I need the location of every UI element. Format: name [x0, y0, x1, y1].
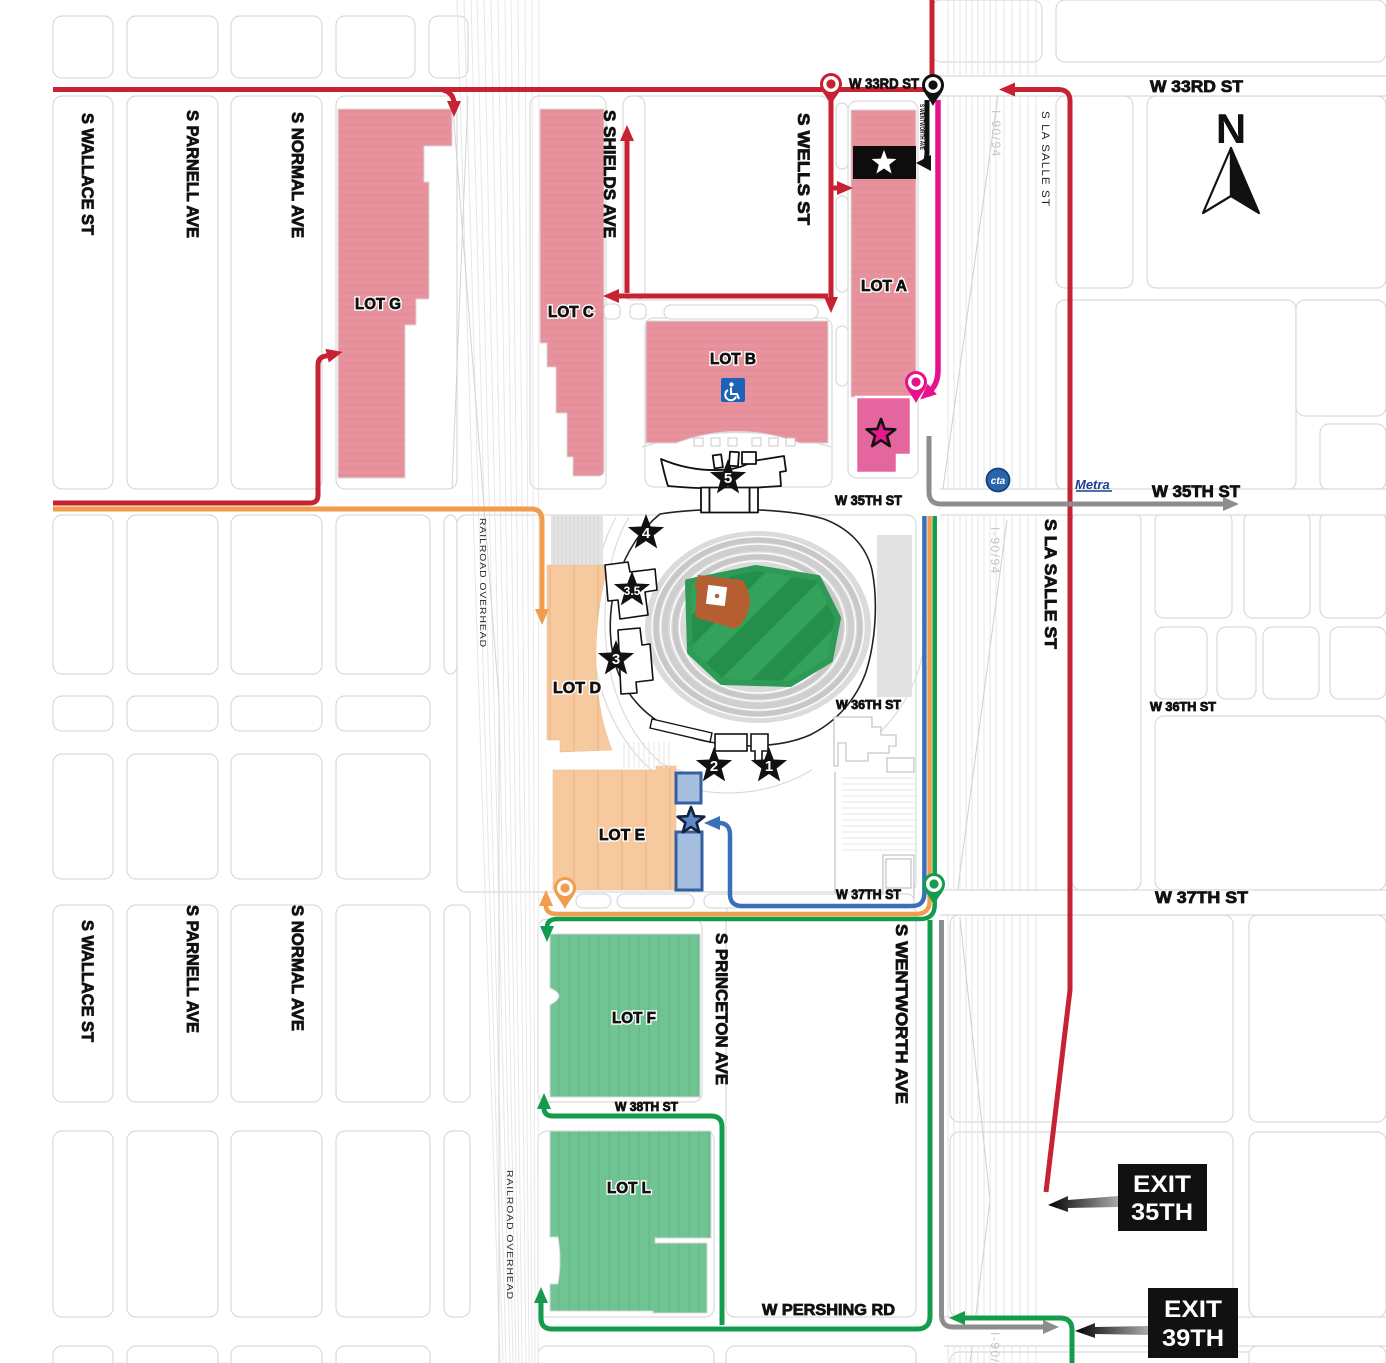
svg-text:S PARNELL AVE: S PARNELL AVE — [183, 110, 202, 238]
svg-text:W 33RD ST: W 33RD ST — [849, 77, 919, 93]
svg-text:RAILROAD OVERHEAD: RAILROAD OVERHEAD — [505, 1170, 515, 1300]
svg-text:5: 5 — [724, 470, 732, 487]
svg-text:N: N — [1216, 105, 1246, 152]
svg-text:2: 2 — [710, 758, 718, 775]
svg-text:W 35TH ST: W 35TH ST — [835, 493, 903, 508]
svg-text:S WELLS ST: S WELLS ST — [794, 113, 813, 226]
svg-text:I-90/94: I-90/94 — [988, 527, 1002, 575]
svg-text:Metra: Metra — [1075, 477, 1110, 492]
svg-text:RAILROAD OVERHEAD: RAILROAD OVERHEAD — [478, 518, 488, 648]
svg-text:3.5: 3.5 — [624, 584, 641, 598]
svg-text:LOT E: LOT E — [599, 827, 645, 844]
svg-text:W 37TH ST: W 37TH ST — [836, 887, 902, 902]
svg-text:4: 4 — [642, 525, 651, 542]
svg-text:I-90/94: I-90/94 — [988, 1332, 1002, 1363]
svg-text:S PARNELL AVE: S PARNELL AVE — [183, 905, 202, 1033]
svg-text:S SHIELDS AVE: S SHIELDS AVE — [600, 110, 619, 238]
svg-text:W PERSHING RD: W PERSHING RD — [762, 1302, 895, 1319]
svg-text:EXIT: EXIT — [1133, 1171, 1191, 1198]
svg-text:LOT L: LOT L — [607, 1180, 651, 1197]
svg-text:LOT G: LOT G — [355, 296, 401, 313]
svg-text:S LA SALLE ST: S LA SALLE ST — [1041, 519, 1060, 650]
svg-text:LOT D: LOT D — [553, 680, 601, 697]
svg-text:S WALLACE ST: S WALLACE ST — [78, 113, 97, 236]
svg-text:EXIT: EXIT — [1164, 1296, 1222, 1323]
svg-text:LOT B: LOT B — [710, 351, 756, 368]
svg-text:S PRINCETON AVE: S PRINCETON AVE — [712, 933, 731, 1085]
svg-text:3: 3 — [612, 651, 620, 668]
svg-text:W 36TH ST: W 36TH ST — [836, 698, 901, 712]
svg-text:S WENTWORTH AVE: S WENTWORTH AVE — [892, 924, 911, 1104]
svg-text:S WENTWORTH AVE: S WENTWORTH AVE — [918, 104, 924, 150]
svg-text:cta: cta — [991, 476, 1006, 487]
svg-text:35TH: 35TH — [1131, 1199, 1193, 1226]
svg-text:S NORMAL AVE: S NORMAL AVE — [288, 905, 307, 1031]
svg-text:W 38TH ST: W 38TH ST — [615, 1100, 678, 1114]
svg-text:I-90/94: I-90/94 — [989, 110, 1003, 158]
svg-text:39TH: 39TH — [1162, 1325, 1224, 1352]
svg-text:S LA SALLE ST: S LA SALLE ST — [1039, 111, 1051, 207]
svg-text:S WALLACE ST: S WALLACE ST — [78, 920, 97, 1043]
svg-text:W 36TH ST: W 36TH ST — [1150, 700, 1216, 714]
svg-text:1: 1 — [765, 758, 773, 775]
svg-text:LOT F: LOT F — [612, 1010, 656, 1027]
svg-text:LOT A: LOT A — [861, 278, 907, 295]
svg-text:S NORMAL AVE: S NORMAL AVE — [288, 112, 307, 238]
svg-text:W 33RD ST: W 33RD ST — [1150, 78, 1243, 96]
svg-text:W 37TH ST: W 37TH ST — [1155, 889, 1248, 907]
svg-text:LOT C: LOT C — [548, 304, 594, 321]
svg-text:W 35TH ST: W 35TH ST — [1152, 483, 1240, 501]
